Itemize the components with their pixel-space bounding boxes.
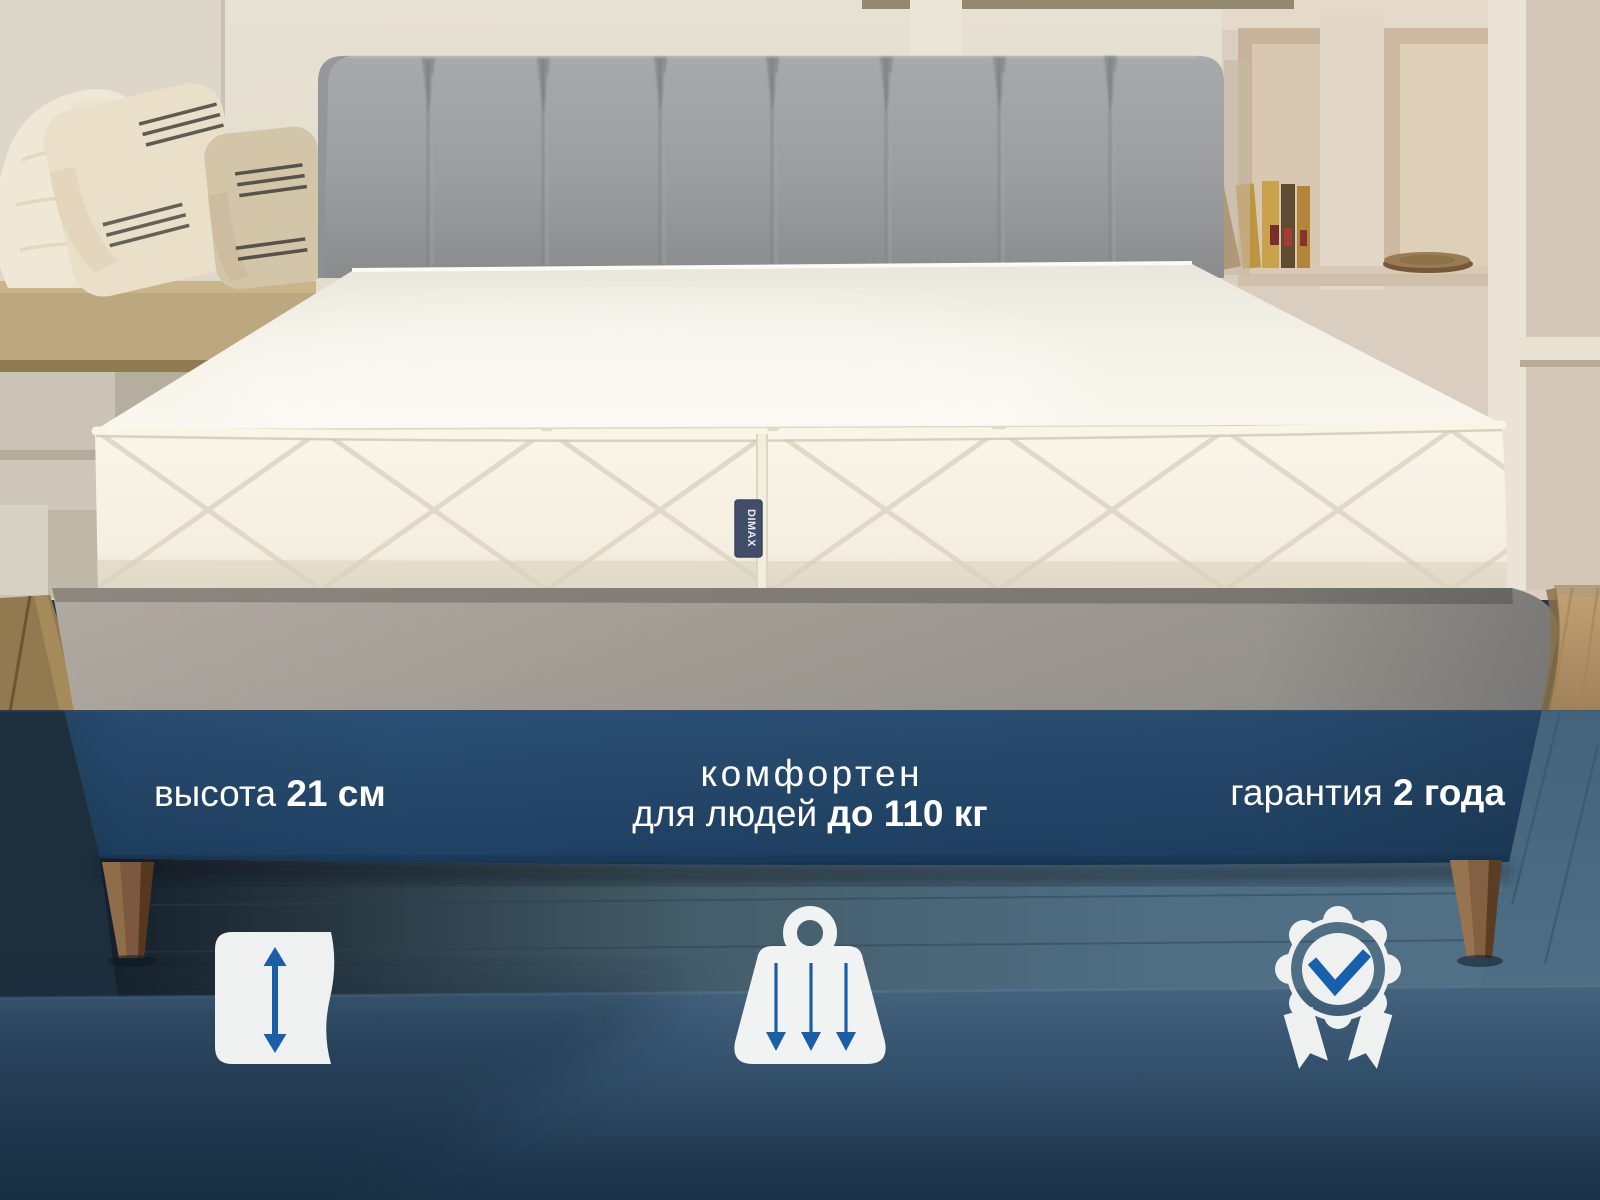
svg-text:высота 21 см: высота 21 см <box>154 773 386 814</box>
svg-text:DIMAX: DIMAX <box>745 509 757 547</box>
svg-text:для людей до 110 кг: для людей до 110 кг <box>632 793 987 834</box>
svg-text:гарантия 2 года: гарантия 2 года <box>1230 772 1505 813</box>
svg-text:комфортен: комфортен <box>701 753 920 794</box>
